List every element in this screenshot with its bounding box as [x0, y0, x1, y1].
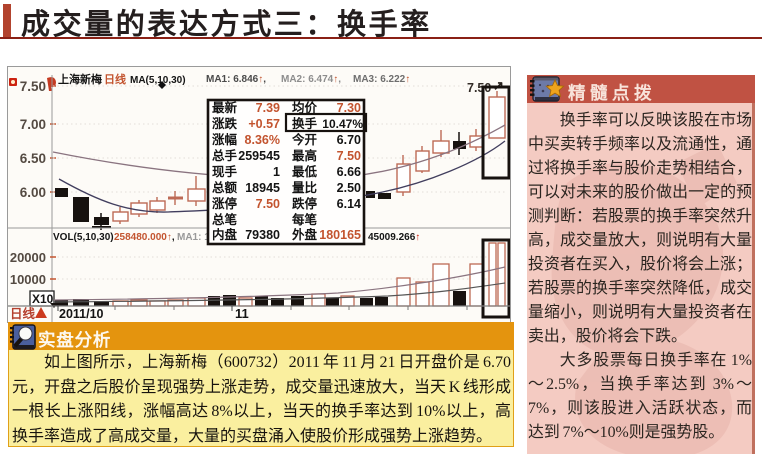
- svg-text:最低: 最低: [292, 164, 318, 179]
- svg-text:MA1: 6.846↑,: MA1: 6.846↑,: [206, 74, 266, 85]
- svg-text:180165: 180165: [319, 228, 361, 242]
- svg-text:MA3: 6.222↑: MA3: 6.222↑: [353, 74, 410, 85]
- svg-text:量比: 量比: [292, 180, 318, 195]
- svg-text:日线: 日线: [104, 72, 126, 86]
- svg-text:20000: 20000: [10, 250, 46, 265]
- svg-text:外盘: 外盘: [291, 227, 318, 242]
- svg-text:7.50: 7.50: [20, 79, 46, 94]
- svg-text:6.00: 6.00: [20, 185, 46, 200]
- svg-text:7.39: 7.39: [256, 101, 280, 115]
- svg-text:1: 1: [273, 165, 280, 179]
- svg-text:2.50: 2.50: [337, 181, 361, 195]
- svg-text:总手: 总手: [212, 148, 238, 163]
- svg-text:8.36%: 8.36%: [245, 133, 280, 147]
- svg-text:10000: 10000: [10, 272, 46, 287]
- svg-text:日线: 日线: [10, 306, 36, 321]
- svg-text:涨停: 涨停: [212, 196, 238, 211]
- svg-text:6.70: 6.70: [337, 133, 361, 147]
- svg-text:6.50: 6.50: [20, 151, 46, 166]
- svg-text:内盘: 内盘: [212, 227, 238, 242]
- svg-text:X10: X10: [32, 292, 54, 306]
- svg-text:45009.266↑: 45009.266↑: [368, 232, 420, 243]
- svg-text:258480.000↑,: 258480.000↑,: [114, 232, 175, 243]
- svg-text:涨跌: 涨跌: [212, 116, 238, 131]
- svg-text:MA(5,10,30): MA(5,10,30): [130, 75, 186, 86]
- svg-text:换手: 换手: [292, 116, 318, 131]
- svg-text:均价: 均价: [292, 100, 318, 115]
- svg-text:VOL(5,10,30): VOL(5,10,30): [53, 232, 114, 243]
- svg-text:上海新梅: 上海新梅: [58, 72, 102, 86]
- svg-text:涨幅: 涨幅: [212, 132, 238, 147]
- svg-text:10.47%: 10.47%: [322, 117, 363, 131]
- svg-text:2011/10: 2011/10: [59, 307, 104, 321]
- svg-text:最新: 最新: [212, 100, 238, 115]
- svg-text:今开: 今开: [291, 132, 318, 147]
- svg-text:7.50: 7.50: [337, 149, 361, 163]
- svg-text:MA2: 6.474↑,: MA2: 6.474↑,: [281, 74, 341, 85]
- svg-text:7.00: 7.00: [20, 117, 46, 132]
- svg-text:18945: 18945: [245, 181, 280, 195]
- svg-text:+0.57: +0.57: [248, 117, 280, 131]
- svg-text:11: 11: [235, 306, 249, 321]
- svg-text:6.14: 6.14: [337, 197, 361, 211]
- svg-text:现手: 现手: [212, 164, 238, 179]
- svg-text:259545: 259545: [238, 149, 280, 163]
- svg-text:总笔: 总笔: [212, 212, 238, 227]
- svg-text:79380: 79380: [245, 228, 280, 242]
- svg-text:每笔: 每笔: [292, 212, 318, 227]
- svg-text:跌停: 跌停: [292, 196, 318, 211]
- svg-text:6.66: 6.66: [337, 165, 361, 179]
- svg-text:最高: 最高: [292, 148, 317, 163]
- svg-text:7.50: 7.50: [256, 197, 280, 211]
- svg-text:总额: 总额: [212, 180, 238, 195]
